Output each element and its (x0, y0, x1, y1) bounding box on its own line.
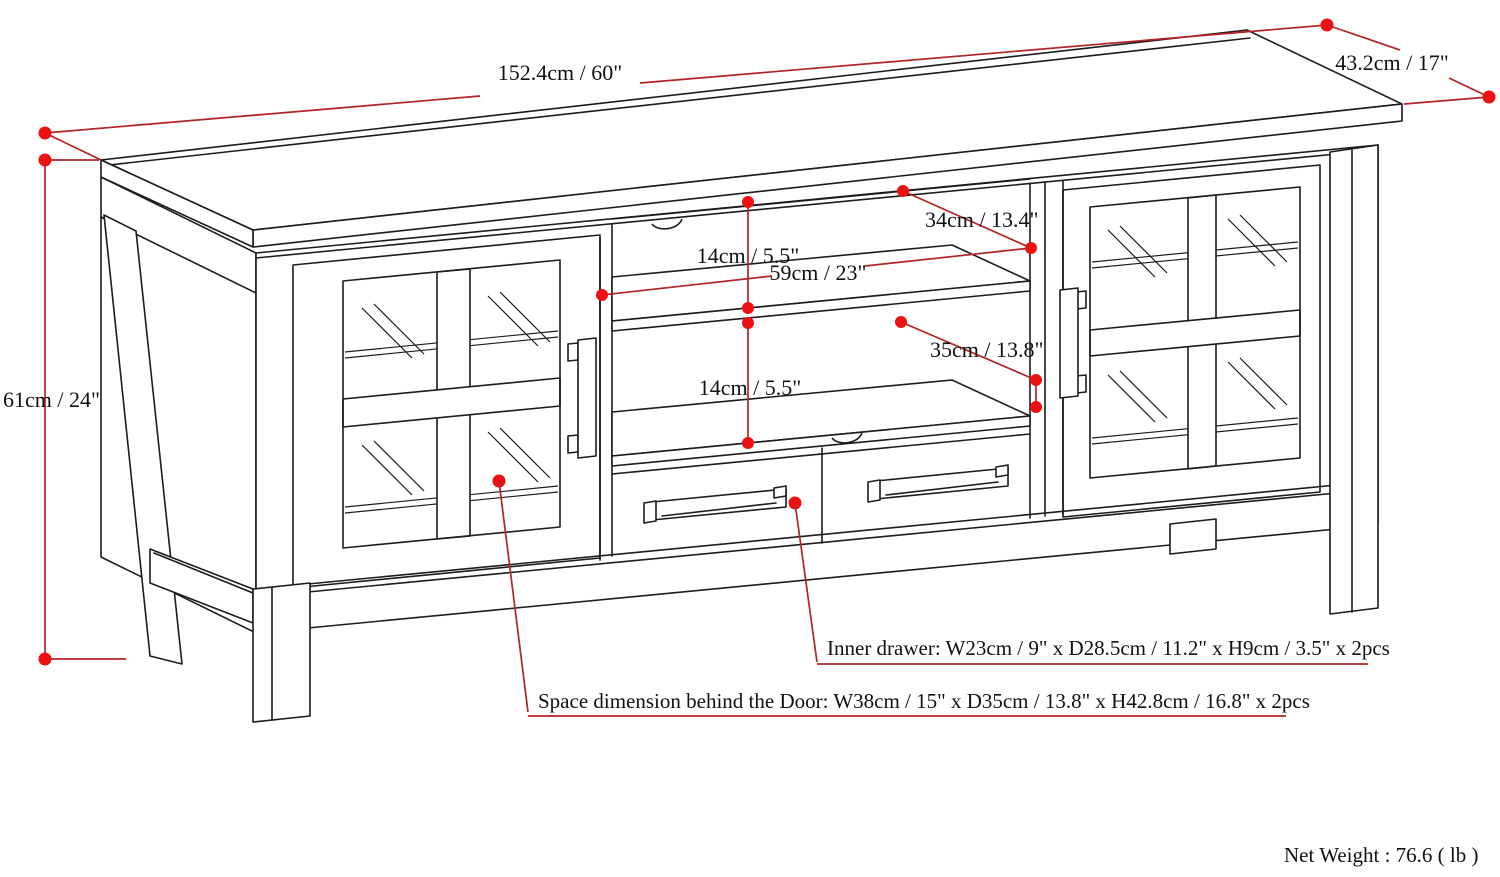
top-shelf-depth-label: 34cm / 13.4" (925, 207, 1038, 232)
middle-width-label: 59cm / 23" (770, 260, 867, 285)
left-side-face (101, 177, 256, 664)
depth-dimension-label: 43.2cm / 17" (1335, 50, 1448, 75)
dimension-diagram-page: 152.4cm / 60" 43.2cm / 17" 61cm / 24" 14… (0, 0, 1500, 877)
back-right-leg-foot (1170, 519, 1216, 554)
bottom-shelf-depth-label: 35cm / 13.8" (930, 337, 1043, 362)
front-left-leg (253, 583, 310, 722)
door-space-note-text: Space dimension behind the Door: W38cm /… (538, 689, 1310, 713)
front-right-leg (1330, 145, 1378, 614)
lower-shelf-height-label: 14cm / 5.5" (699, 375, 801, 400)
width-dimension-label: 152.4cm / 60" (498, 60, 622, 85)
tv-stand-line-drawing: 152.4cm / 60" 43.2cm / 17" 61cm / 24" 14… (0, 0, 1500, 877)
net-weight-text: Net Weight : 76.6 ( lb ) (1284, 843, 1478, 867)
height-dimension-label: 61cm / 24" (3, 387, 100, 412)
inner-drawer-note-text: Inner drawer: W23cm / 9" x D28.5cm / 11.… (827, 636, 1390, 660)
